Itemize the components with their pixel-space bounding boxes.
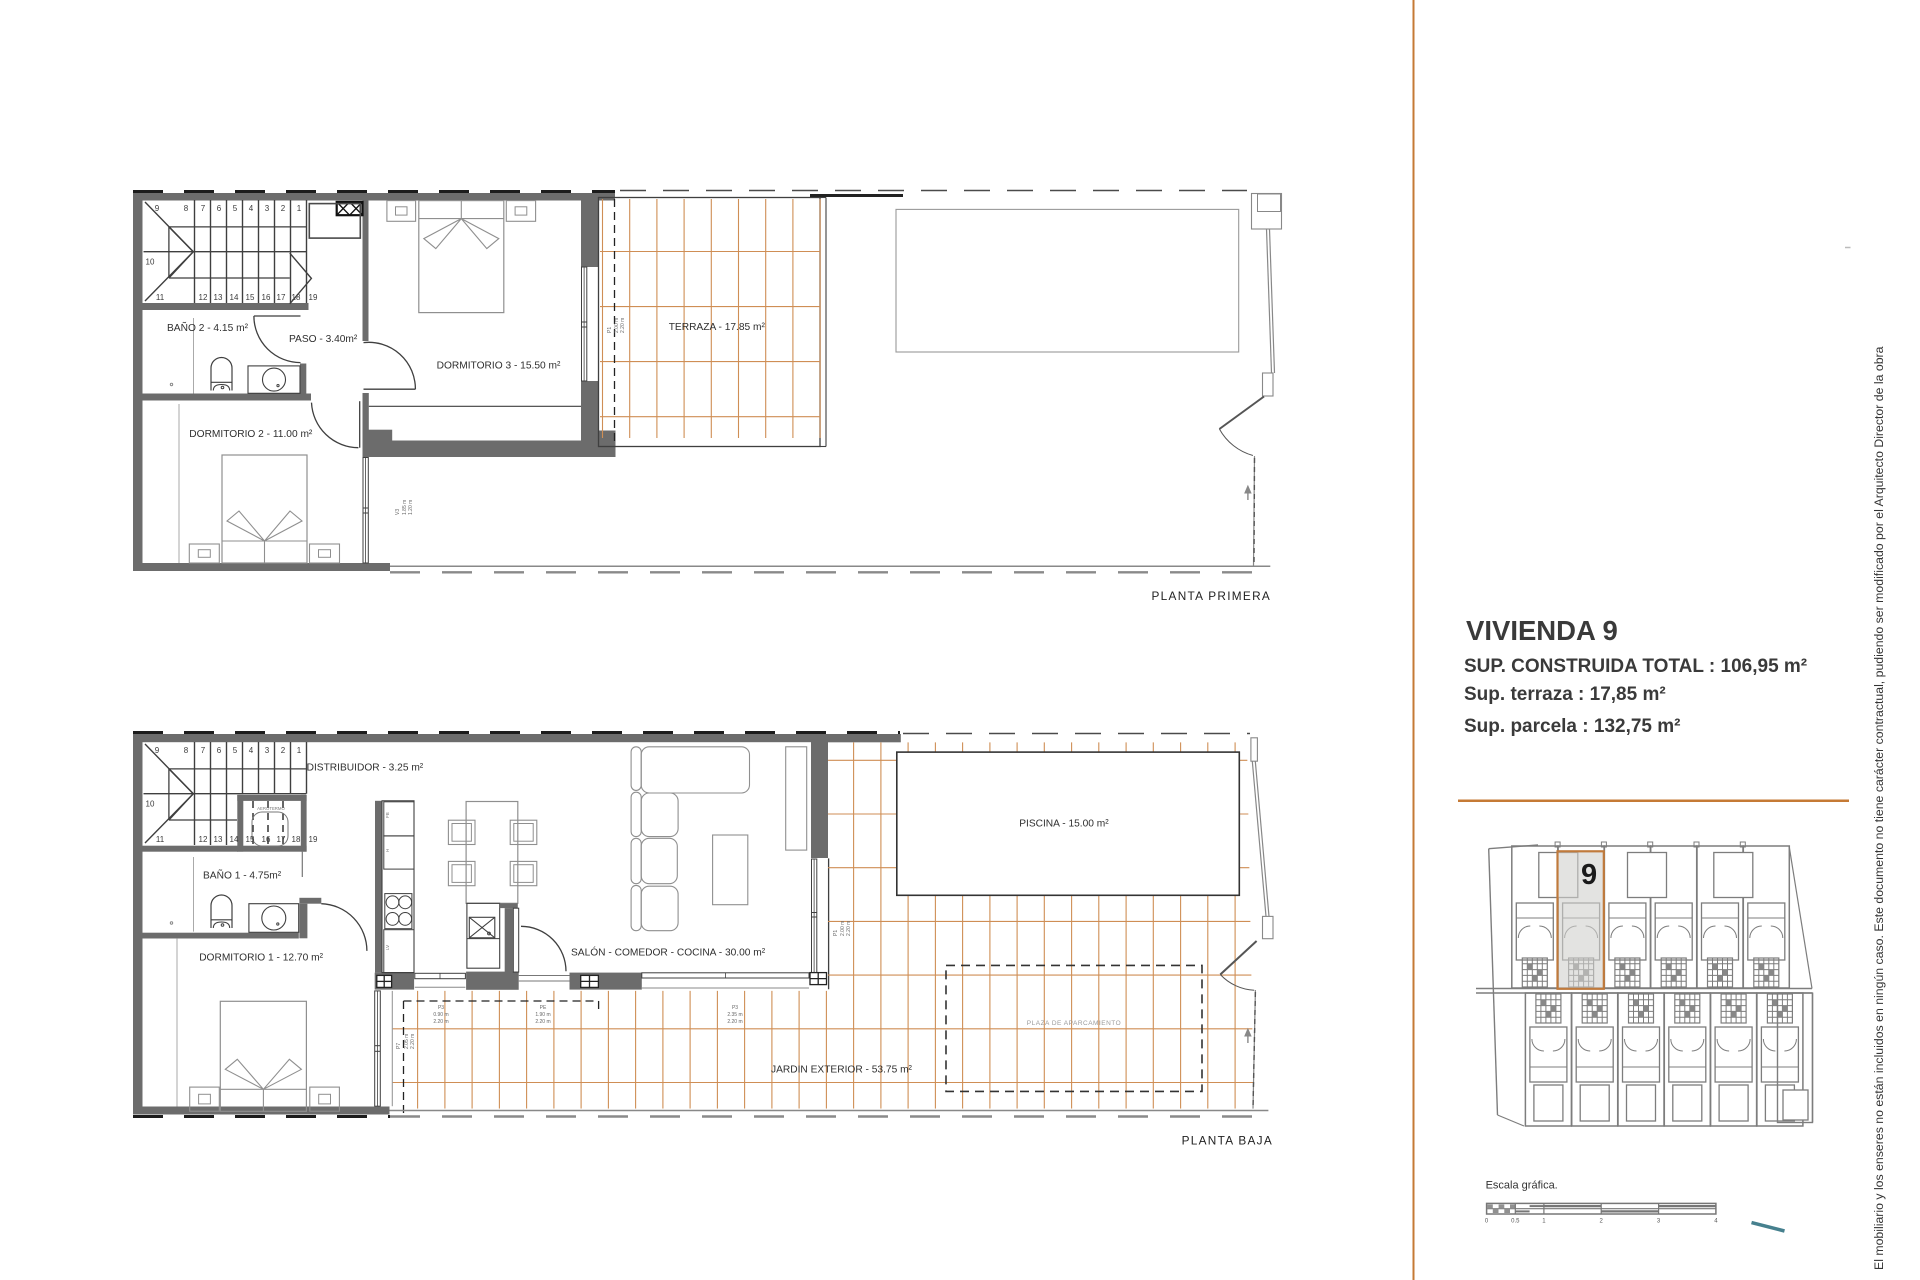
svg-text:11: 11 xyxy=(156,835,165,844)
svg-text:PISCINA - 15.00 m²: PISCINA - 15.00 m² xyxy=(1019,819,1109,830)
svg-text:12: 12 xyxy=(199,835,208,844)
svg-text:PLAZA DE APARCAMIENTO: PLAZA DE APARCAMIENTO xyxy=(1027,1020,1121,1027)
svg-text:SUP. CONSTRUIDA TOTAL : 106,95: SUP. CONSTRUIDA TOTAL : 106,95 m² xyxy=(1464,656,1807,677)
svg-text:7: 7 xyxy=(201,204,206,213)
svg-text:PE: PE xyxy=(540,1005,547,1011)
svg-text:7: 7 xyxy=(201,746,206,755)
svg-text:11: 11 xyxy=(156,293,165,302)
svg-text:P7: P7 xyxy=(396,1043,402,1049)
svg-text:2.35 m: 2.35 m xyxy=(727,1012,742,1018)
svg-text:SALÓN - COMEDOR - COCINA - 30.: SALÓN - COMEDOR - COCINA - 30.00 m² xyxy=(571,946,766,959)
svg-text:JARDIN EXTERIOR - 53.75 m²: JARDIN EXTERIOR - 53.75 m² xyxy=(771,1065,913,1076)
svg-text:5: 5 xyxy=(233,746,238,755)
svg-text:Sup. parcela : 132,75 m²: Sup. parcela : 132,75 m² xyxy=(1464,716,1681,737)
svg-text:6: 6 xyxy=(217,204,222,213)
svg-text:2.20 m: 2.20 m xyxy=(620,318,626,333)
svg-text:13: 13 xyxy=(214,293,223,302)
svg-text:P1: P1 xyxy=(607,327,613,333)
svg-text:9: 9 xyxy=(1581,859,1597,891)
svg-text:14: 14 xyxy=(230,835,239,844)
svg-text:P3: P3 xyxy=(438,1005,444,1011)
svg-text:BAÑO 1 - 4.75m²: BAÑO 1 - 4.75m² xyxy=(203,869,282,882)
svg-text:DISTRIBUIDOR - 3.25 m²: DISTRIBUIDOR - 3.25 m² xyxy=(307,763,424,774)
svg-text:Sup. terraza : 17,85 m²: Sup. terraza : 17,85 m² xyxy=(1464,684,1666,705)
svg-text:Escala gráfica.: Escala gráfica. xyxy=(1486,1180,1558,1192)
svg-text:10: 10 xyxy=(146,800,155,809)
svg-text:17: 17 xyxy=(277,293,286,302)
svg-text:LV: LV xyxy=(385,945,390,950)
svg-text:P1: P1 xyxy=(833,930,839,936)
svg-text:4: 4 xyxy=(249,204,254,213)
svg-text:5: 5 xyxy=(233,204,238,213)
svg-text:18: 18 xyxy=(292,835,301,844)
svg-text:14: 14 xyxy=(230,293,239,302)
svg-text:0.5: 0.5 xyxy=(1511,1218,1520,1224)
svg-text:P3: P3 xyxy=(732,1005,738,1011)
svg-text:TERRAZA - 17.85 m²: TERRAZA - 17.85 m² xyxy=(669,322,766,333)
svg-text:1.20 m: 1.20 m xyxy=(408,500,414,515)
svg-text:3: 3 xyxy=(265,746,270,755)
svg-text:19: 19 xyxy=(309,835,318,844)
svg-text:El mobiliario y los enseres no: El mobiliario y los enseres no están inc… xyxy=(1872,346,1886,1270)
svg-text:1: 1 xyxy=(297,746,302,755)
svg-text:16: 16 xyxy=(262,835,271,844)
svg-text:1.90 m: 1.90 m xyxy=(535,1012,550,1018)
svg-text:15: 15 xyxy=(246,835,255,844)
svg-text:2.20 m: 2.20 m xyxy=(727,1019,742,1025)
svg-text:PASO - 3.40m²: PASO - 3.40m² xyxy=(289,334,358,345)
svg-text:PLANTA PRIMERA: PLANTA PRIMERA xyxy=(1152,589,1272,603)
svg-text:19: 19 xyxy=(309,293,318,302)
svg-text:2: 2 xyxy=(281,204,286,213)
svg-text:H: H xyxy=(385,849,390,852)
svg-text:16: 16 xyxy=(262,293,271,302)
svg-text:12: 12 xyxy=(199,293,208,302)
svg-text:VIVIENDA 9: VIVIENDA 9 xyxy=(1466,615,1618,646)
svg-text:4: 4 xyxy=(249,746,254,755)
svg-text:3: 3 xyxy=(265,204,270,213)
svg-text:2.20 m: 2.20 m xyxy=(433,1019,448,1025)
svg-text:BAÑO 2 - 4.15 m²: BAÑO 2 - 4.15 m² xyxy=(167,321,249,334)
svg-text:1: 1 xyxy=(297,204,302,213)
svg-text:0.90 m: 0.90 m xyxy=(433,1012,448,1018)
svg-text:FB: FB xyxy=(385,812,390,818)
svg-text:DORMITORIO 3 - 15.50 m²: DORMITORIO 3 - 15.50 m² xyxy=(437,361,561,372)
svg-text:PLANTA BAJA: PLANTA BAJA xyxy=(1182,1134,1273,1148)
svg-text:6: 6 xyxy=(217,746,222,755)
svg-text:10: 10 xyxy=(146,258,155,267)
svg-text:9: 9 xyxy=(155,746,160,755)
svg-text:2.20 m: 2.20 m xyxy=(410,1034,416,1049)
svg-text:2: 2 xyxy=(281,746,286,755)
svg-text:V3: V3 xyxy=(395,509,401,515)
svg-text:9: 9 xyxy=(155,204,160,213)
svg-text:17: 17 xyxy=(277,835,286,844)
svg-text:15: 15 xyxy=(246,293,255,302)
svg-text:2.20 m: 2.20 m xyxy=(535,1019,550,1025)
svg-text:8: 8 xyxy=(184,204,189,213)
svg-text:DORMITORIO 2 - 11.00 m²: DORMITORIO 2 - 11.00 m² xyxy=(189,429,313,440)
svg-text:8: 8 xyxy=(184,746,189,755)
svg-text:2.20 m: 2.20 m xyxy=(846,921,852,936)
svg-text:18: 18 xyxy=(292,293,301,302)
svg-text:AEROTERMO: AEROTERMO xyxy=(257,806,285,811)
svg-text:DORMITORIO 1 - 12.70 m²: DORMITORIO 1 - 12.70 m² xyxy=(199,953,323,964)
svg-text:13: 13 xyxy=(214,835,223,844)
